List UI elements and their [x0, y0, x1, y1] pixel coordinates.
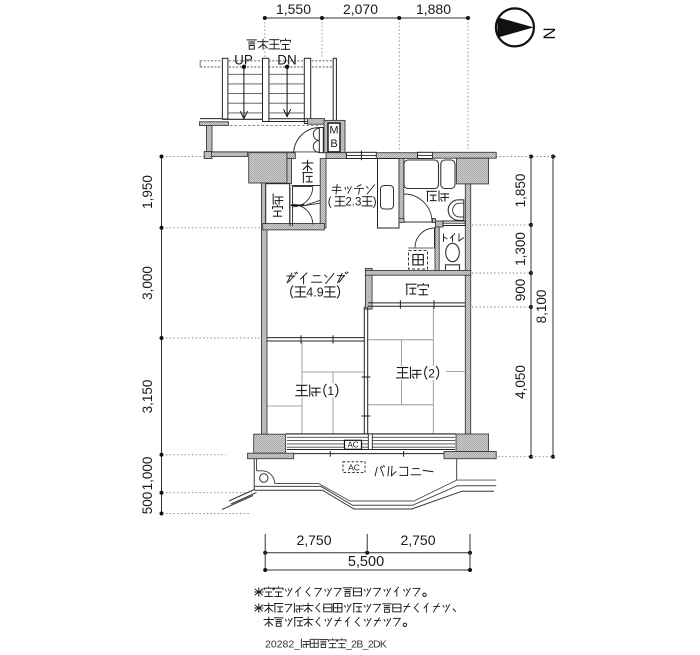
svg-text:UP: UP: [234, 53, 253, 68]
svg-text:2,070: 2,070: [343, 1, 378, 17]
svg-text:2: 2: [428, 366, 435, 380]
svg-text:1,550: 1,550: [276, 1, 311, 17]
svg-text:2,750: 2,750: [296, 532, 331, 548]
svg-text:500: 500: [140, 492, 155, 515]
svg-text:1: 1: [327, 384, 334, 398]
svg-text:2,750: 2,750: [400, 532, 435, 548]
svg-text:900: 900: [513, 279, 528, 302]
svg-text:1,880: 1,880: [416, 1, 451, 17]
svg-text:8,100: 8,100: [534, 290, 549, 324]
svg-text:M: M: [329, 125, 338, 137]
svg-text:N: N: [540, 27, 559, 39]
svg-text:4.9: 4.9: [306, 286, 323, 300]
svg-text:4,050: 4,050: [513, 365, 528, 399]
svg-text:5,500: 5,500: [348, 554, 384, 570]
svg-text:DN: DN: [277, 53, 297, 68]
svg-text:AC: AC: [348, 463, 360, 473]
svg-text:1,950: 1,950: [140, 175, 155, 209]
svg-text:1,000: 1,000: [140, 457, 155, 491]
svg-text:(: (: [328, 197, 332, 209]
svg-text:1,850: 1,850: [513, 174, 528, 208]
svg-text:_2B_2DK: _2B_2DK: [345, 638, 387, 650]
svg-text:AC: AC: [347, 441, 358, 450]
svg-text:20282_: 20282_: [265, 638, 300, 650]
svg-text:B: B: [330, 138, 337, 150]
svg-text:3,000: 3,000: [140, 266, 155, 300]
svg-text:2.3: 2.3: [345, 197, 361, 209]
svg-text:3,150: 3,150: [140, 380, 155, 414]
svg-text:): ): [373, 197, 377, 209]
svg-text:1,300: 1,300: [513, 232, 528, 266]
